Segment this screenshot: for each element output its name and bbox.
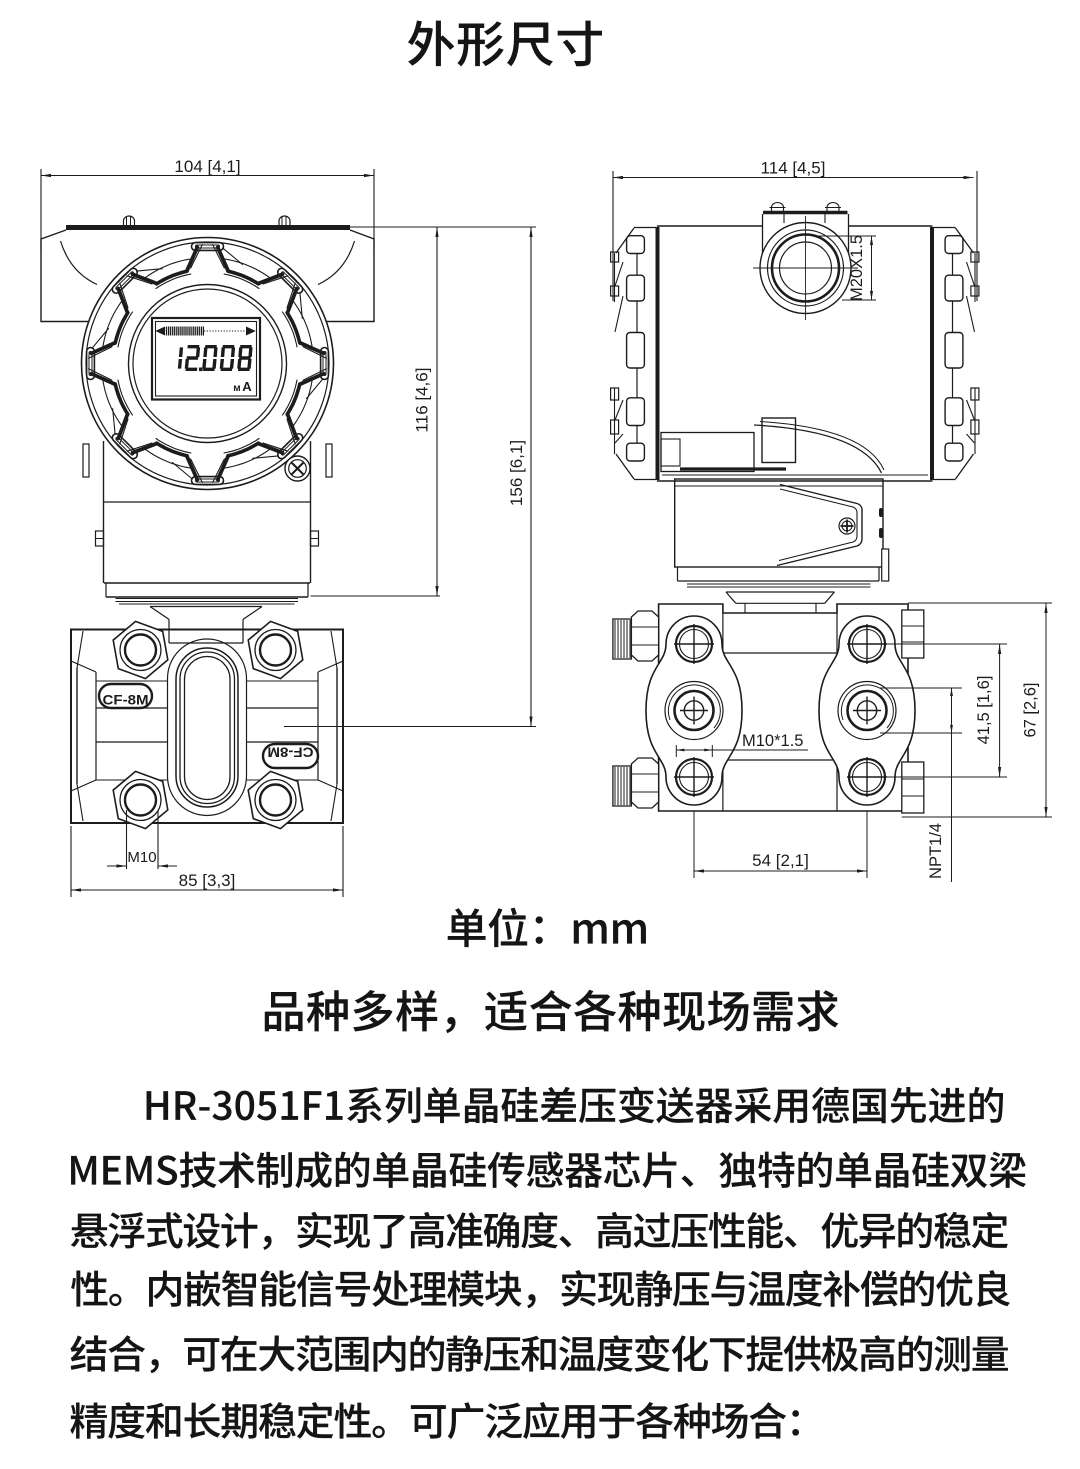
svg-text:M10*1.5: M10*1.5: [742, 732, 803, 750]
svg-text:M20X1.5: M20X1.5: [848, 235, 866, 301]
svg-text:A: A: [242, 379, 252, 394]
svg-text:41,5 [1,6]: 41,5 [1,6]: [975, 676, 993, 745]
svg-text:NPT1/4: NPT1/4: [927, 823, 945, 879]
svg-text:104 [4,1]: 104 [4,1]: [174, 157, 240, 176]
svg-text:85 [3,3]: 85 [3,3]: [179, 871, 236, 890]
svg-text:CF-8M: CF-8M: [268, 745, 314, 760]
svg-text:м: м: [233, 383, 240, 394]
svg-text:114 [4,5]: 114 [4,5]: [761, 159, 826, 178]
svg-text:M10: M10: [127, 849, 156, 866]
svg-text:CF-8M: CF-8M: [103, 693, 149, 708]
svg-text:54 [2,1]: 54 [2,1]: [752, 851, 809, 870]
svg-text:116 [4,6]: 116 [4,6]: [413, 368, 432, 433]
svg-text:67 [2,6]: 67 [2,6]: [1022, 682, 1040, 737]
svg-text:156 [6,1]: 156 [6,1]: [507, 440, 526, 506]
